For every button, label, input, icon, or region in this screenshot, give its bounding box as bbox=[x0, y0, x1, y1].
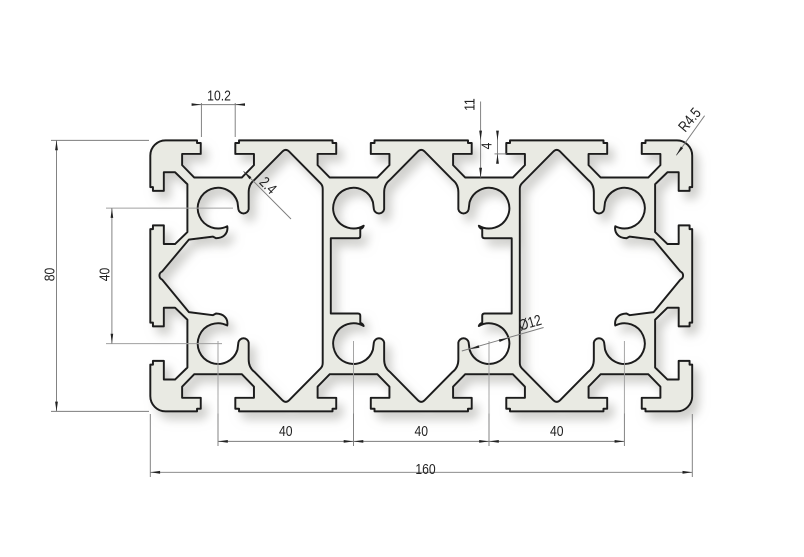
svg-text:40: 40 bbox=[550, 423, 564, 440]
svg-text:10.2: 10.2 bbox=[207, 87, 231, 104]
svg-text:4: 4 bbox=[478, 142, 495, 149]
svg-text:80: 80 bbox=[41, 267, 58, 281]
svg-text:40: 40 bbox=[96, 267, 113, 281]
svg-text:40: 40 bbox=[415, 423, 429, 440]
svg-text:40: 40 bbox=[279, 423, 293, 440]
svg-text:11: 11 bbox=[461, 98, 478, 111]
svg-text:Ø12: Ø12 bbox=[517, 312, 544, 334]
svg-text:2.4: 2.4 bbox=[256, 174, 280, 198]
svg-text:160: 160 bbox=[415, 461, 436, 478]
svg-text:R4.5: R4.5 bbox=[675, 104, 704, 135]
